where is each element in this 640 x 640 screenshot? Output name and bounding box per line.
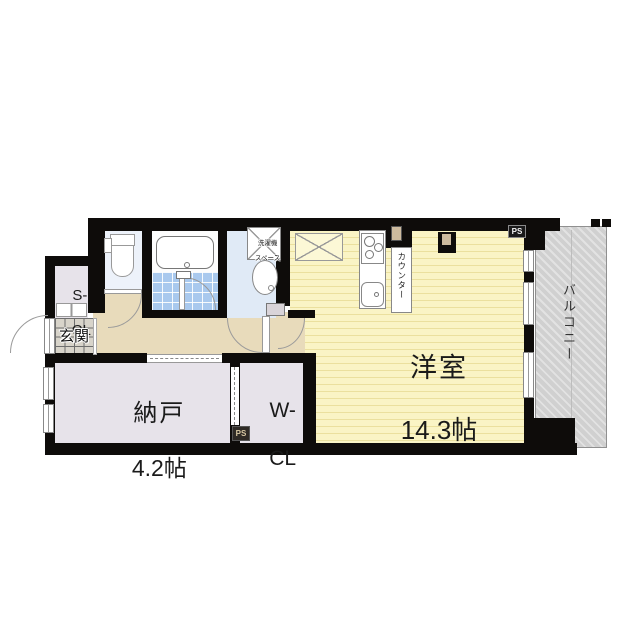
living-door-arc [278, 318, 305, 349]
storage-room-label: 納戸 4.2帖 [62, 372, 222, 510]
wall-wcl-top [222, 353, 316, 363]
wall-top [95, 218, 560, 231]
wcl-line1: W- [269, 399, 295, 422]
balcony-label: バルコニー [560, 283, 575, 363]
wall-toilet-bath [142, 231, 152, 318]
washbasin-faucet [268, 285, 274, 291]
toilet-bowl [111, 245, 134, 277]
wcl-label: W- CL [241, 375, 301, 496]
bath-door-arc [183, 277, 216, 310]
counter-label: カウンター [396, 252, 406, 300]
powder-door-leaf [262, 316, 270, 353]
entrance-label: 玄関 [55, 328, 93, 345]
ps-shaft-top: PS [508, 225, 526, 238]
storage-room-name: 納戸 [133, 400, 185, 427]
wall-top-right-stub-1 [591, 219, 600, 227]
western-room-name: 洋室 [410, 353, 468, 383]
storage-sliding-door-dash [150, 358, 219, 359]
floor-plan: 洗濯機 スペース カウンター PS PS 洋室 14.3帖 納戸 4.2帖 W-… [0, 0, 640, 640]
toilet-side-panel [104, 238, 112, 253]
stove-burner-3 [365, 250, 374, 259]
kitchen-sink [361, 282, 384, 307]
kitchen-block-cap [391, 226, 402, 241]
wcl-line2: CL [269, 447, 296, 470]
wcl-pocket-door [231, 367, 239, 425]
wall-right-top-corner [524, 230, 545, 250]
sink-faucet [374, 292, 379, 297]
window-balcony-3 [523, 352, 534, 398]
entrance-step-strip [93, 318, 97, 355]
wall-bath-powder [218, 231, 227, 318]
window-storage-left-1 [43, 367, 54, 400]
window-storage-left-2 [43, 404, 54, 433]
western-room-area: 14.3帖 [401, 415, 478, 445]
laundry-line1: 洗濯機 [258, 240, 278, 247]
bath-counter-box [176, 271, 191, 279]
window-balcony-1 [523, 250, 534, 272]
wall-doorhead-bar [288, 310, 315, 318]
stove-burner-2 [374, 243, 383, 252]
wall-endcap-gray [266, 303, 285, 316]
window-balcony-2 [523, 282, 534, 325]
wall-top-right-stub-2 [602, 219, 611, 227]
wall-balcony-corner-block [530, 418, 575, 446]
powder-door-arc [227, 318, 262, 353]
wcl-pocket-door-dash [234, 367, 235, 425]
ps-top-label: PS [512, 227, 523, 236]
western-room-label: 洋室 14.3帖 [330, 322, 510, 477]
bathtub-drain [184, 262, 190, 268]
entrance-door-arc [10, 315, 48, 353]
toilet-door-arc [108, 294, 142, 328]
washbasin [252, 260, 278, 295]
scl-line1: S- [72, 287, 87, 304]
pillar-cap [442, 234, 451, 245]
wall-wcl-right [303, 353, 316, 445]
wall-below-bath [142, 310, 227, 318]
refrigerator-space-box [295, 233, 343, 261]
storage-room-area: 4.2帖 [132, 455, 187, 481]
